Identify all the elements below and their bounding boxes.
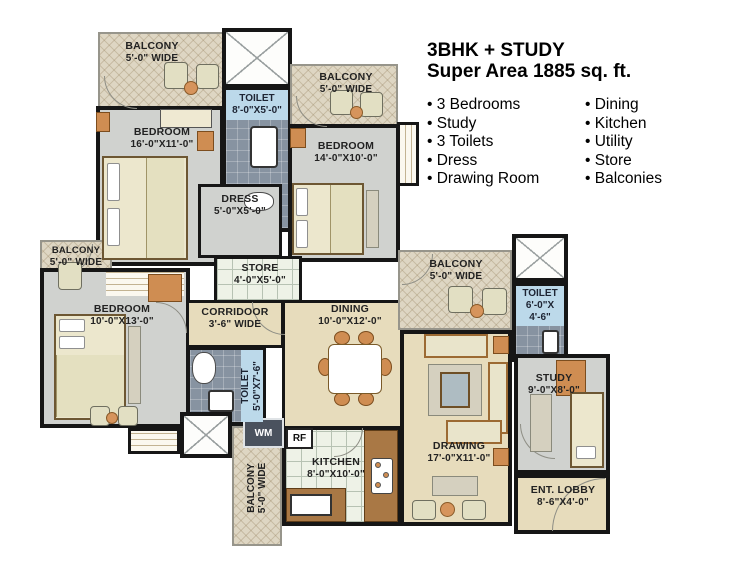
balcony-chair: [482, 288, 507, 315]
label-store: STORE 4'-0"X5'-0": [222, 262, 298, 287]
night-stand: [96, 112, 110, 132]
label-kitchen: KITCHEN 8'-0"X10'-0": [294, 456, 378, 481]
room-dims: 8'-0"X10'-0": [294, 469, 378, 482]
room-name: TOILET: [232, 93, 282, 105]
room-dims: 5'-0" WIDE: [296, 84, 396, 97]
shaft-bottom: [180, 412, 232, 458]
pillow: [107, 163, 120, 201]
label-corridor: CORRIDOOR 3'-6" WIDE: [190, 306, 280, 331]
room-dims: 3'-6" WIDE: [190, 319, 280, 332]
wc: [192, 352, 216, 384]
feature-lists: 3 Bedrooms Study 3 Toilets Dress Drawing…: [427, 96, 727, 189]
label-balcony-right: BALCONY 5'-0" WIDE: [406, 258, 506, 283]
room-dims: 5'-0" WIDE: [41, 257, 111, 269]
label-dress: DRESS 5'-0"X5'-0": [200, 193, 280, 218]
shaft-top: [222, 28, 292, 88]
room-dims: 4'-6": [522, 312, 557, 324]
kitchen-sink: [290, 494, 332, 516]
room-name: STUDY: [517, 372, 591, 385]
round-table: [440, 502, 455, 517]
label-balcony-top-mid: BALCONY 5'-0" WIDE: [296, 71, 396, 96]
pillow: [576, 446, 596, 459]
feature-item: Kitchen: [585, 115, 662, 134]
label-toilet-top: TOILET 8'-0"X5'-0": [226, 90, 288, 120]
ottoman: [493, 336, 509, 354]
room-name: BEDROOM: [296, 140, 396, 153]
room-name: TOILET: [522, 288, 557, 300]
feature-item: 3 Toilets: [427, 133, 585, 152]
pillow: [59, 336, 85, 349]
label-bedroom-master: BEDROOM 16'-0"X11'-0": [112, 126, 212, 151]
feature-item: Drawing Room: [427, 170, 585, 189]
room-name: DINING: [292, 303, 408, 316]
wardrobe-bedroom-mid: [397, 122, 419, 186]
bench: [366, 190, 379, 248]
floor-plan-page: WM RF BALCONY 5'-0" WIDE TOILET 8'-0"X5'…: [0, 0, 738, 569]
label-drawing: DRAWING 17'-0"X11'-0": [412, 440, 506, 465]
room-dims: 4'-0"X5'-0": [222, 275, 298, 288]
rug-small: [432, 476, 478, 496]
feature-column-1: 3 Bedrooms Study 3 Toilets Dress Drawing…: [427, 96, 585, 189]
feature-item: Study: [427, 115, 585, 134]
room-dims: 5'-0"X5'-0": [200, 206, 280, 219]
balcony-table: [470, 304, 484, 318]
vanity-sink: [542, 330, 559, 354]
vanity-sink: [208, 390, 234, 412]
room-name: BALCONY: [296, 71, 396, 84]
room-dims: 5'-0"X7'-6": [252, 361, 264, 411]
label-toilet-right: TOILET 6'-0"X 4'-6": [516, 286, 564, 326]
pillow: [107, 208, 120, 246]
label-study: STUDY 9'-0"X8'-0": [517, 372, 591, 397]
room-name: BALCONY: [406, 258, 506, 271]
room-name: BEDROOM: [62, 303, 182, 316]
chair: [412, 500, 436, 520]
room-name: KITCHEN: [294, 456, 378, 469]
dining-table: [328, 344, 382, 394]
room-dims: 8'-6"X4'-0": [517, 497, 609, 510]
desk: [148, 274, 182, 302]
round-table: [106, 412, 118, 424]
label-balcony-bottom: BALCONY 5'-0" WIDE: [234, 442, 280, 534]
label-balcony-left: BALCONY 5'-0" WIDE: [41, 245, 111, 268]
room-name: STORE: [222, 262, 298, 275]
room-name: BALCONY: [246, 463, 257, 513]
room-name: TOILET: [240, 361, 252, 411]
vanity-sink: [250, 126, 278, 168]
chair: [462, 500, 486, 520]
balcony-table: [350, 106, 363, 119]
bed-sheet: [146, 158, 184, 258]
room-dims: 9'-0"X8'-0": [517, 385, 591, 398]
label-bedroom-left: BEDROOM 10'-0"X13'-0": [62, 303, 182, 328]
bed-sheet: [330, 185, 362, 253]
balcony-table: [184, 81, 198, 95]
room-dims: 8'-0"X5'-0": [232, 105, 282, 117]
bench: [128, 326, 141, 404]
burner: [375, 482, 381, 488]
feature-item: Dining: [585, 96, 662, 115]
room-name: DRAWING: [412, 440, 506, 453]
room-name: DRESS: [200, 193, 280, 206]
room-dims: 10'-0"X13'-0": [62, 316, 182, 329]
room-dims: 5'-0" WIDE: [257, 463, 268, 513]
room-dims: 10'-0"X12'-0": [292, 316, 408, 329]
plan-title: 3BHK + STUDY: [427, 40, 727, 61]
room-name: BEDROOM: [112, 126, 212, 139]
dining-chair: [358, 392, 374, 406]
chair: [118, 406, 138, 426]
info-block: 3BHK + STUDY Super Area 1885 sq. ft. 3 B…: [427, 40, 727, 189]
room-dims: 5'-0" WIDE: [102, 53, 202, 66]
feature-item: Dress: [427, 152, 585, 171]
label-bedroom-mid: BEDROOM 14'-0"X10'-0": [296, 140, 396, 165]
room-dims: 14'-0"X10'-0": [296, 153, 396, 166]
label-ent-lobby: ENT. LOBBY 8'-6"X4'-0": [517, 484, 609, 509]
plan-subtitle: Super Area 1885 sq. ft.: [427, 61, 727, 82]
label-balcony-top-left: BALCONY 5'-0" WIDE: [102, 40, 202, 65]
shaft-right: [512, 234, 568, 282]
refrigerator-label: RF: [293, 433, 306, 444]
balcony-chair: [196, 64, 219, 89]
feature-item: Store: [585, 152, 662, 171]
sofa-top: [424, 334, 488, 358]
room-name: CORRIDOOR: [190, 306, 280, 319]
room-dims: 17'-0"X11'-0": [412, 453, 506, 466]
feature-column-2: Dining Kitchen Utility Store Balconies: [585, 96, 662, 189]
label-dining: DINING 10'-0"X12'-0": [292, 303, 408, 328]
washing-machine-label: WM: [255, 428, 273, 439]
burner: [383, 472, 389, 478]
room-name: ENT. LOBBY: [517, 484, 609, 497]
wardrobe-bedroom-left: [128, 428, 180, 454]
dining-chair: [358, 331, 374, 345]
room-name: BALCONY: [102, 40, 202, 53]
room-dims: 16'-0"X11'-0": [112, 139, 212, 152]
feature-item: Utility: [585, 133, 662, 152]
room-name: BALCONY: [41, 245, 111, 257]
study-desk: [530, 394, 552, 452]
tv-table: [440, 372, 470, 408]
dining-chair: [334, 331, 350, 345]
feature-item: Balconies: [585, 170, 662, 189]
feature-item: 3 Bedrooms: [427, 96, 585, 115]
refrigerator: RF: [286, 428, 313, 449]
room-dims: 5'-0" WIDE: [406, 271, 506, 284]
pillow: [296, 220, 308, 248]
pillow: [296, 188, 308, 216]
room-dims: 6'-0"X: [522, 300, 557, 312]
label-toilet-mid: TOILET 5'-0"X7'-6": [241, 350, 263, 422]
dining-chair: [334, 392, 350, 406]
